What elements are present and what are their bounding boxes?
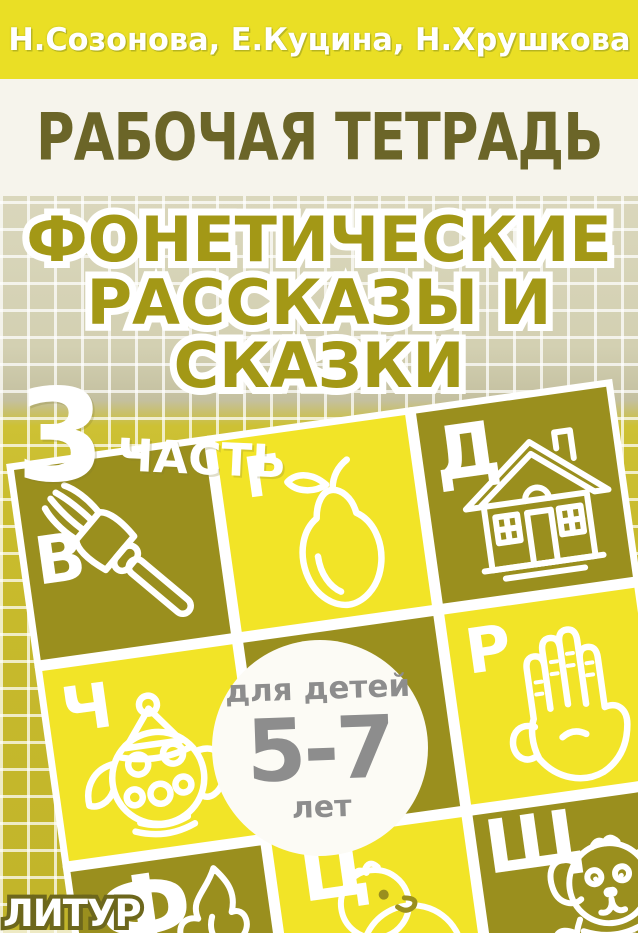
tile-letter-v: В <box>31 523 90 595</box>
part-number: 3 <box>16 378 105 496</box>
main-title-line-2 <box>0 266 638 329</box>
part-word: ЧАСТЬ <box>116 428 287 488</box>
tile-letter-ch: Ч <box>58 674 116 742</box>
tile-letter-shch: Щ <box>480 799 587 886</box>
series-title: РАБОЧАЯ ТЕТРАДЬ <box>36 100 602 175</box>
tile-shch: Щ <box>473 789 638 933</box>
tile-letter-d: Д <box>429 411 505 493</box>
part-label: 3 ЧАСТЬ <box>16 378 286 496</box>
tile-d: Д <box>416 387 633 604</box>
main-title-line-1 <box>0 203 638 266</box>
authors-band: Н.Созонова, Е.Куцина, Н.Хрушкова <box>0 0 638 79</box>
series-band: РАБОЧАЯ ТЕТРАДЬ <box>0 79 638 196</box>
publisher-logo <box>3 892 141 933</box>
tile-r: Р <box>444 588 638 805</box>
authors-line: Н.Созонова, Е.Куцина, Н.Хрушкова <box>8 22 630 58</box>
age-badge-text: для детей 5-7 лет <box>225 670 415 825</box>
book-cover: Н.Созонова, Е.Куцина, Н.Хрушкова РАБОЧАЯ… <box>0 0 638 933</box>
tile-letter-r: Р <box>462 616 516 684</box>
age-badge-range: 5-7 <box>226 703 414 795</box>
age-badge: для детей 5-7 лет <box>212 640 428 856</box>
